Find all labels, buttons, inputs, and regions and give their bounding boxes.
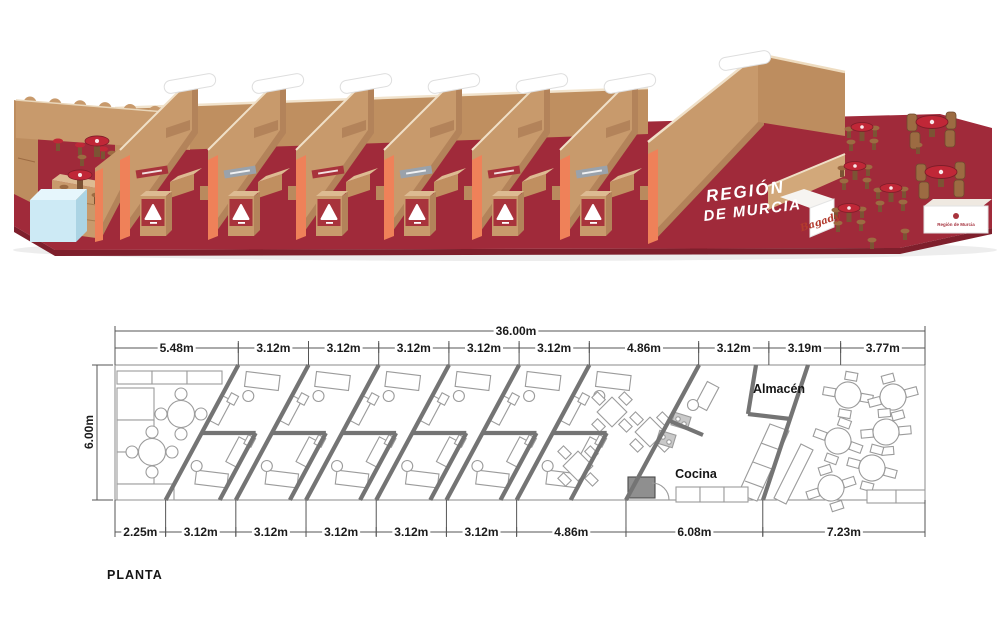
bottom-dim-label: 3.12m: [465, 525, 499, 539]
logo-podium: [404, 191, 436, 236]
counter-logo-text: Región de Murcia: [937, 222, 975, 227]
logo-podium: [580, 191, 612, 236]
logo-podium: [492, 191, 524, 236]
logo-podium: [316, 191, 348, 236]
storage-room-label: Almacén: [753, 382, 805, 396]
top-dim-label: 3.12m: [717, 341, 751, 355]
top-dim-label: 3.12m: [256, 341, 290, 355]
logo-podium: [140, 191, 172, 236]
blue-cube: [30, 189, 87, 242]
top-dim-label: 3.77m: [866, 341, 900, 355]
exhibition-stand-design-sheet: 36.00m5.48m3.12m3.12m3.12m3.12m3.12m4.86…: [0, 0, 1000, 618]
kitchen-room-label: Cocina: [675, 467, 718, 481]
top-dim-label: 3.12m: [327, 341, 361, 355]
top-dim-label: 4.86m: [627, 341, 661, 355]
top-dim-label: 3.12m: [537, 341, 571, 355]
plan-title: PLANTA: [107, 568, 163, 582]
region-emblem-icon: [953, 213, 959, 219]
height-dim-label: 6.00m: [82, 415, 96, 449]
total-width-label: 36.00m: [496, 324, 537, 338]
top-dim-label: 3.12m: [467, 341, 501, 355]
bottom-dim-label: 3.12m: [394, 525, 428, 539]
bottom-dim-label: 2.25m: [123, 525, 157, 539]
stand-3d-render: [13, 50, 997, 261]
top-dim-label: 5.48m: [160, 341, 194, 355]
bottom-dim-label: 7.23m: [827, 525, 861, 539]
bottom-dim-label: 6.08m: [677, 525, 711, 539]
bottom-dim-label: 4.86m: [554, 525, 588, 539]
stand-drawing: 36.00m5.48m3.12m3.12m3.12m3.12m3.12m4.86…: [0, 0, 1000, 618]
bottom-dim-label: 3.12m: [324, 525, 358, 539]
top-dim-label: 3.12m: [397, 341, 431, 355]
bottom-dim-label: 3.12m: [254, 525, 288, 539]
logo-podium: [228, 191, 260, 236]
bottom-dim-label: 3.12m: [184, 525, 218, 539]
logo-counter: [924, 199, 992, 233]
top-dim-label: 3.19m: [788, 341, 822, 355]
floor-plan: 36.00m5.48m3.12m3.12m3.12m3.12m3.12m4.86…: [82, 324, 925, 539]
